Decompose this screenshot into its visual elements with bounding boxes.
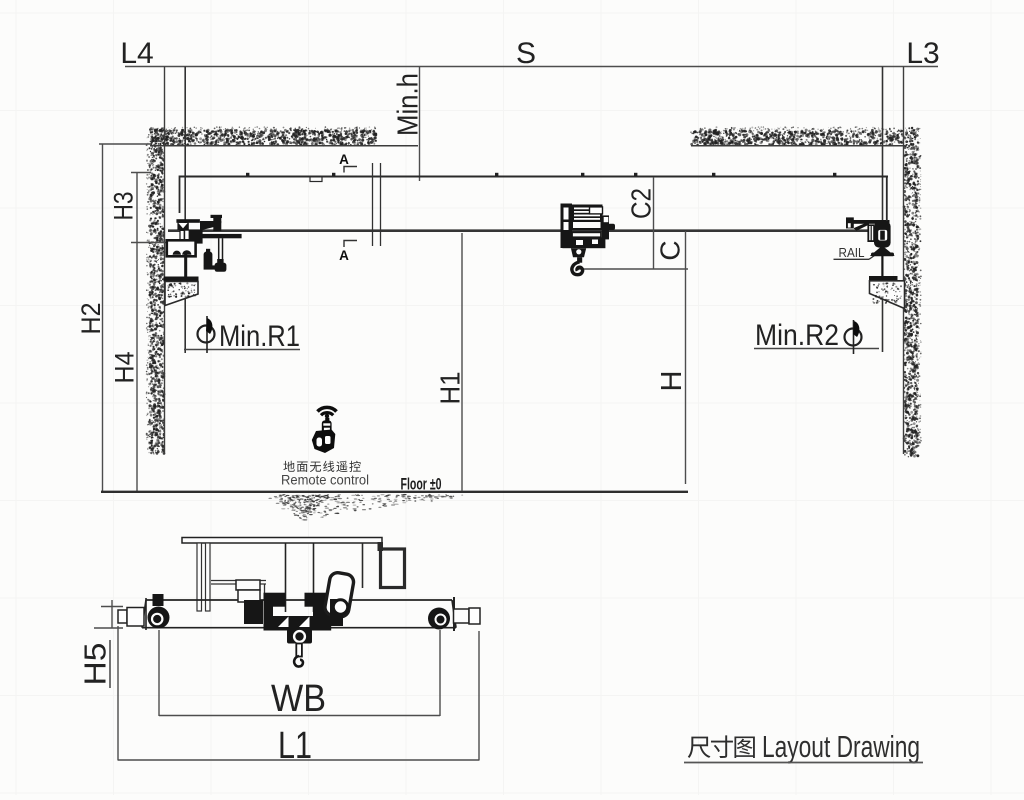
svg-text:Min.h: Min.h: [393, 73, 425, 136]
svg-text:H3: H3: [109, 192, 139, 221]
svg-text:Min.R2: Min.R2: [755, 319, 839, 352]
svg-text:S: S: [516, 37, 536, 70]
svg-text:C2: C2: [626, 188, 657, 219]
svg-text:A: A: [339, 248, 349, 263]
svg-text:L4: L4: [120, 37, 153, 70]
svg-text:RAIL: RAIL: [839, 246, 865, 260]
svg-text:Min.R1: Min.R1: [219, 320, 300, 353]
svg-text:C: C: [655, 240, 686, 260]
svg-text:H1: H1: [435, 372, 466, 405]
svg-text:H4: H4: [110, 352, 140, 384]
svg-text:L3: L3: [906, 37, 939, 70]
svg-text:H2: H2: [76, 303, 106, 335]
svg-text:A: A: [339, 152, 349, 167]
svg-text:H: H: [656, 371, 688, 392]
